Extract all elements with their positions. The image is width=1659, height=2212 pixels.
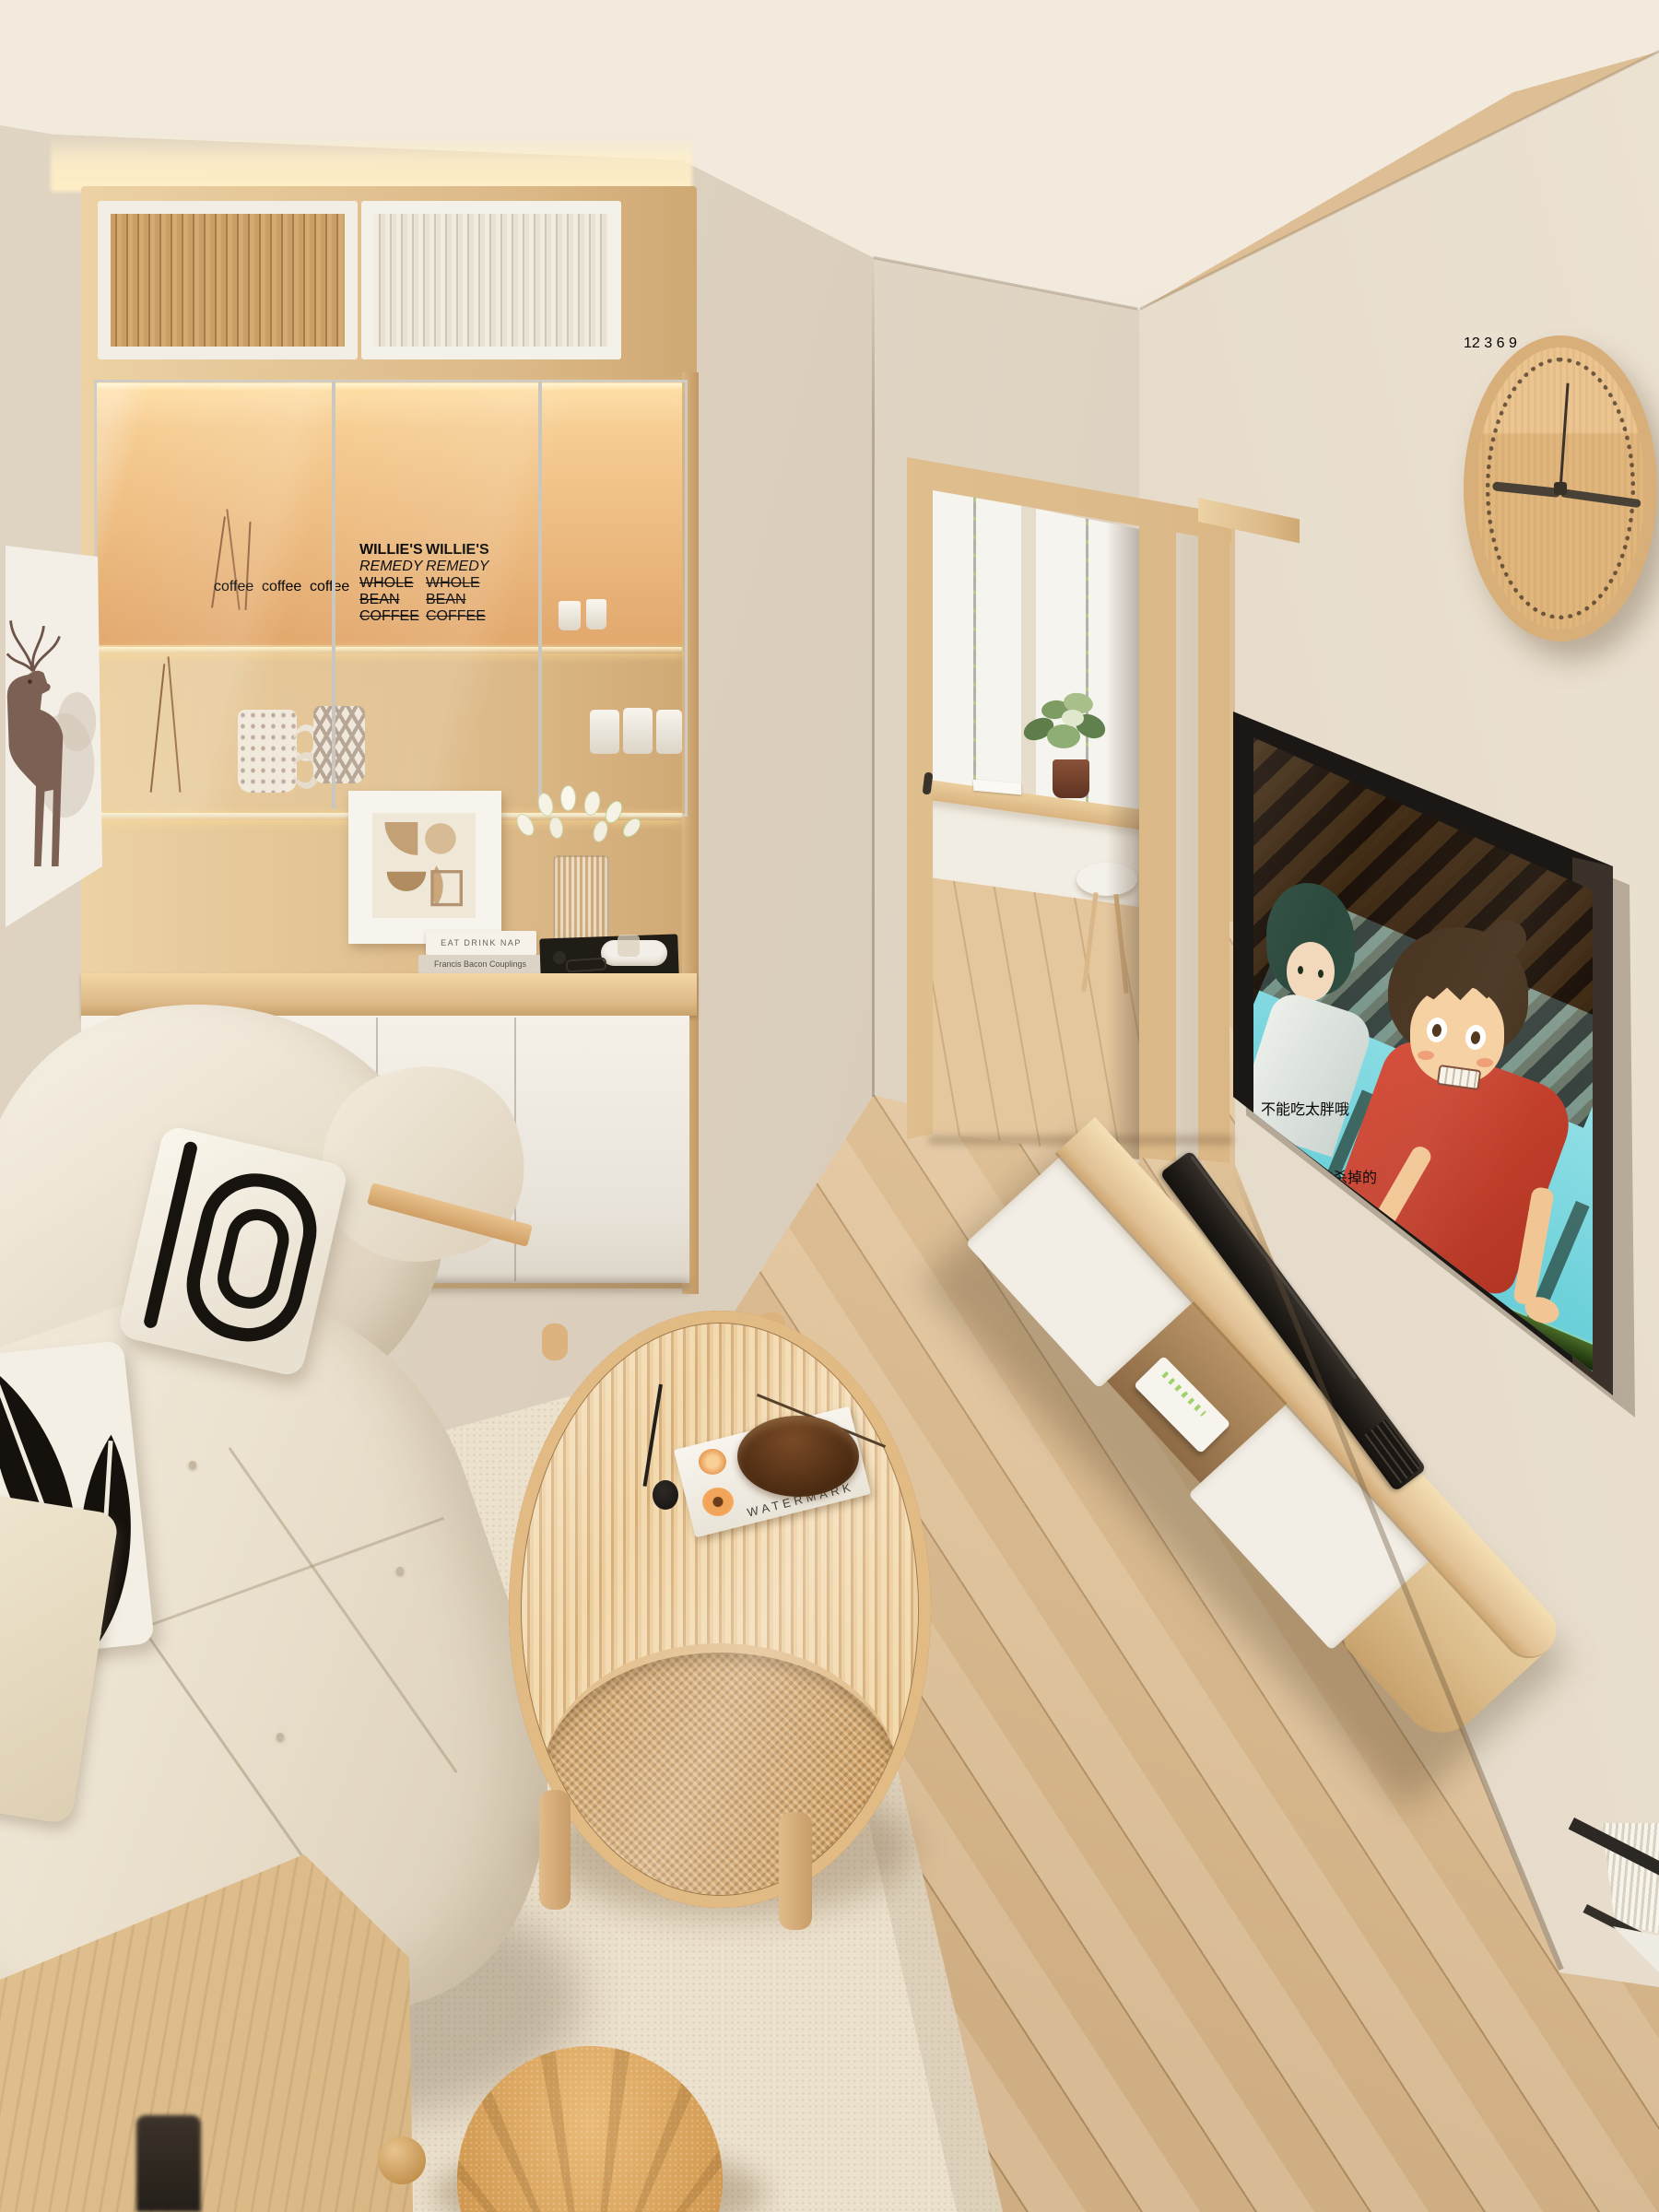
tea-cup: [618, 935, 640, 957]
table-leg: [779, 1812, 812, 1930]
apricot: [769, 1438, 797, 1466]
flower: [560, 785, 576, 811]
fluted-glass-panel: [111, 214, 345, 347]
shelf-book-bottom: Francis Bacon Couplings: [418, 955, 542, 973]
clock-numeral-6: 6: [1497, 335, 1505, 351]
flower: [535, 791, 556, 818]
flower: [513, 811, 538, 840]
art-print: [348, 791, 501, 944]
desk-plant-pot: [1053, 759, 1089, 798]
flower: [582, 790, 602, 818]
wall-corner-line: [872, 258, 875, 1097]
glass-door-divider: [332, 382, 335, 809]
pouf-pompom: [619, 2017, 658, 2055]
pouf-pompom: [717, 2083, 756, 2122]
art-print-graphic: [372, 813, 476, 918]
apricot-half: [699, 1449, 726, 1475]
glass-door-divider: [538, 382, 542, 809]
cabinet-sliding-door-right: [361, 201, 621, 359]
clock-numeral-12: 12: [1464, 335, 1480, 351]
clock-center-cap: [1554, 482, 1567, 495]
book-title: Francis Bacon Couplings: [434, 959, 526, 969]
coffee-table: [509, 1311, 931, 1908]
apricot: [798, 1447, 828, 1477]
blind-cord: [973, 490, 976, 782]
deer-graphic: [4, 564, 100, 914]
window-casing: [929, 477, 1021, 798]
table-glass-top: [522, 1324, 918, 1895]
apricot-half: [702, 1488, 734, 1516]
floor-pouf: [431, 2024, 745, 2212]
living-room-render: coffee coffee coffee WILLIE'S REMEDY WHO…: [0, 0, 1659, 2212]
sofa-tuft-button: [276, 1733, 284, 1740]
sofa-tuft-button: [396, 1567, 404, 1574]
pouf-pompom: [734, 2120, 772, 2159]
art-print-mat: [372, 813, 476, 918]
glass-partition-door: [1554, 1823, 1659, 1994]
black-spoon-bowl: [653, 1480, 678, 1510]
inner-shadow: [1106, 516, 1139, 1161]
cabinet-sliding-door-left: [98, 201, 358, 359]
table-glass-sheen: [522, 1324, 918, 1895]
wall-patch: [1174, 512, 1202, 1167]
flower: [547, 816, 564, 840]
sofa-base-gap-shadow: [136, 2115, 201, 2212]
wrist-watch: [553, 951, 566, 964]
router-led-lights: [1161, 1371, 1206, 1417]
book-title: EAT DRINK NAP: [441, 938, 522, 947]
clock-numeral-9: 9: [1509, 335, 1517, 351]
shelf-book-top: EAT DRINK NAP: [426, 931, 536, 955]
glass-door-frame: [94, 380, 688, 817]
flower: [619, 815, 644, 841]
table-leg: [539, 1790, 571, 1910]
cove-light: [51, 135, 692, 192]
wall-clock: 12 3 6 9: [1464, 335, 1657, 641]
fluted-glass-panel: [374, 214, 608, 347]
wifi-router: [1134, 1356, 1231, 1453]
leaf: [1047, 724, 1080, 748]
deer-art: [4, 564, 100, 914]
clock-numeral-3: 3: [1484, 335, 1492, 351]
wood-bead: [378, 2136, 426, 2184]
sofa-tuft-button: [189, 1461, 196, 1468]
